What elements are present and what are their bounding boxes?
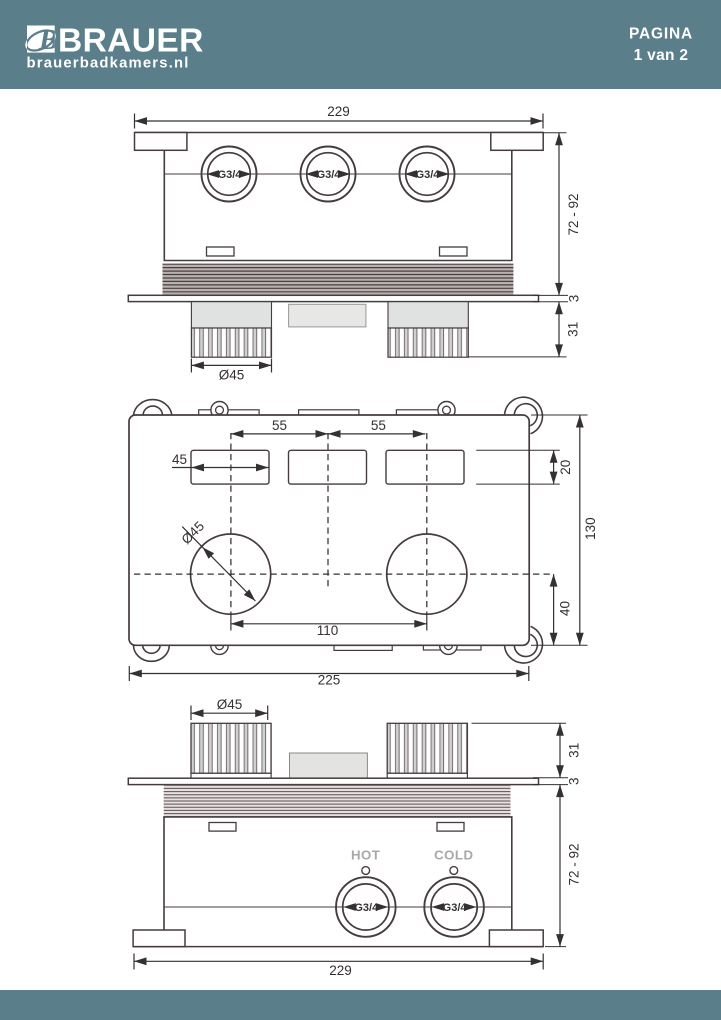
svg-text:55: 55 bbox=[272, 418, 287, 433]
svg-text:PAGINA: PAGINA bbox=[629, 26, 693, 43]
svg-text:G3/4: G3/4 bbox=[416, 169, 441, 181]
svg-text:110: 110 bbox=[317, 623, 339, 638]
svg-text:3: 3 bbox=[567, 295, 582, 303]
svg-text:1 van 2: 1 van 2 bbox=[634, 47, 689, 64]
svg-text:Ø45: Ø45 bbox=[217, 697, 243, 712]
svg-text:brauerbadkamers.nl: brauerbadkamers.nl bbox=[27, 56, 190, 72]
svg-text:225: 225 bbox=[318, 673, 341, 688]
svg-text:HOT: HOT bbox=[351, 848, 380, 863]
svg-text:Ø45: Ø45 bbox=[219, 367, 245, 382]
svg-text:55: 55 bbox=[371, 418, 386, 433]
svg-text:72 - 92: 72 - 92 bbox=[567, 843, 582, 885]
svg-text:31: 31 bbox=[567, 743, 582, 758]
svg-text:COLD: COLD bbox=[434, 848, 473, 863]
svg-text:229: 229 bbox=[329, 963, 352, 978]
svg-text:130: 130 bbox=[583, 517, 598, 540]
svg-text:G3/4: G3/4 bbox=[354, 902, 379, 914]
svg-text:45: 45 bbox=[172, 452, 187, 467]
svg-text:G3/4: G3/4 bbox=[218, 169, 243, 181]
svg-text:BRAUER: BRAUER bbox=[58, 23, 204, 60]
svg-text:3: 3 bbox=[567, 777, 582, 785]
svg-text:G3/4: G3/4 bbox=[317, 169, 342, 181]
svg-text:31: 31 bbox=[566, 322, 581, 337]
svg-text:20: 20 bbox=[558, 460, 573, 475]
svg-text:229: 229 bbox=[327, 104, 350, 119]
svg-text:40: 40 bbox=[558, 601, 573, 616]
svg-text:72 - 92: 72 - 92 bbox=[566, 193, 581, 235]
svg-text:G3/4: G3/4 bbox=[443, 902, 468, 914]
